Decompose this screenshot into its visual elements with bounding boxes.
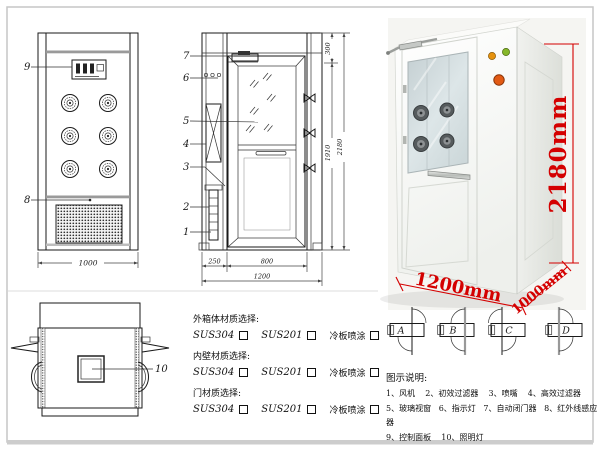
side-nozzle-profiles — [304, 94, 315, 172]
option-sus304: SUS304 — [193, 404, 234, 415]
checkbox-outer-sus304[interactable] — [239, 331, 248, 340]
svg-text:1910: 1910 — [324, 145, 332, 162]
checkbox-door-coldplate[interactable] — [370, 405, 379, 414]
top-view-drawing: 10 — [11, 303, 169, 416]
svg-text:D: D — [561, 326, 570, 337]
air-shower-spec-sheet: 9 8 1000 — [0, 0, 600, 450]
callout-indicator-light: 6 — [183, 73, 190, 84]
option-sus304: SUS304 — [193, 330, 234, 341]
material-title: 门材质选择: — [193, 386, 388, 399]
material-title: 内壁材质选择: — [193, 349, 388, 362]
svg-text:800: 800 — [261, 258, 273, 266]
legend-title: 图示说明: — [386, 370, 598, 384]
indicator-light-green — [502, 48, 509, 55]
return-air-grille — [56, 205, 122, 243]
option-coldplate: 冷板喷涂 — [329, 403, 365, 416]
svg-text:A: A — [397, 326, 405, 337]
svg-text:2180: 2180 — [336, 139, 344, 157]
checkbox-inner-coldplate[interactable] — [370, 368, 379, 377]
side-view-drawing: 7 6 5 4 3 — [182, 33, 350, 286]
callout-nozzle: 3 — [183, 162, 189, 173]
side-dims-vertical: 300 1910 2180 — [320, 33, 350, 250]
option-sus201: SUS201 — [261, 404, 302, 415]
option-sus201: SUS201 — [261, 367, 302, 378]
top-divider-bar — [46, 51, 130, 54]
front-nozzles — [62, 95, 117, 178]
callout-hepa-filter: 4 — [182, 139, 189, 150]
front-view-drawing: 9 8 1000 — [24, 33, 138, 268]
door-swing-options: A B C D — [387, 304, 587, 358]
checkbox-outer-coldplate[interactable] — [370, 331, 379, 340]
legend-row: 5、玻璃视窗 6、指示灯 7、自动闭门器 8、红外线感应器 — [386, 402, 598, 431]
sensor-bar — [46, 196, 130, 199]
callout-fan: 1 — [183, 227, 189, 238]
door-option-c: C — [488, 304, 530, 358]
glass-hatching — [246, 73, 276, 133]
material-section-door: 门材质选择: SUS304 SUS201 冷板喷涂 — [193, 386, 388, 416]
checkbox-inner-sus201[interactable] — [307, 368, 316, 377]
svg-text:1000: 1000 — [78, 259, 97, 268]
svg-text:250: 250 — [207, 258, 220, 266]
option-coldplate: 冷板喷涂 — [329, 366, 365, 379]
svg-text:C: C — [505, 326, 513, 337]
svg-text:1200: 1200 — [254, 273, 271, 281]
material-title: 外箱体材质选择: — [193, 312, 388, 325]
side-dims-bottom: 250 800 1200 — [202, 252, 322, 286]
checkbox-inner-sus304[interactable] — [239, 368, 248, 377]
callout-infrared-sensor: 8 — [24, 195, 30, 206]
option-coldplate: 冷板喷涂 — [329, 329, 365, 342]
svg-text:B: B — [449, 326, 457, 337]
door-option-a: A — [387, 304, 429, 358]
handle-left — [32, 362, 43, 392]
front-dim-width: 1000 — [38, 252, 138, 268]
checkbox-door-sus304[interactable] — [239, 405, 248, 414]
callout-control-panel: 9 — [24, 62, 31, 73]
checkbox-door-sus201[interactable] — [307, 405, 316, 414]
material-section-outer: 外箱体材质选择: SUS304 SUS201 冷板喷涂 — [193, 312, 388, 342]
door — [228, 56, 305, 247]
callout-glass-window: 5 — [183, 116, 189, 127]
legend-row: 1、风机 2、初效过滤器 3、喷嘴 4、高效过滤器 — [386, 387, 598, 402]
hepa-filter-box — [206, 104, 221, 162]
indicator-lights — [204, 73, 220, 76]
svg-text:300: 300 — [324, 42, 332, 54]
material-selection: 外箱体材质选择: SUS304 SUS201 冷板喷涂 内壁材质选择: SUS3… — [193, 312, 388, 423]
dim-height-label: 2180mm — [545, 95, 572, 214]
parts-legend: 图示说明: 1、风机 2、初效过滤器 3、喷嘴 4、高效过滤器 5、玻璃视窗 6… — [386, 370, 598, 445]
callout-door-closer: 7 — [183, 51, 190, 62]
callout-primary-filter: 2 — [182, 202, 189, 213]
indicator-light-orange — [488, 52, 495, 59]
checkbox-outer-sus201[interactable] — [307, 331, 316, 340]
door-handle — [256, 152, 286, 156]
control-panel — [72, 60, 106, 79]
material-section-inner: 内壁材质选择: SUS304 SUS201 冷板喷涂 — [193, 349, 388, 379]
door-option-d: D — [545, 304, 587, 358]
legend-row: 9、控制面板 10、照明灯 — [386, 431, 598, 446]
emergency-button — [494, 75, 504, 85]
handle-right — [138, 362, 149, 392]
option-sus201: SUS201 — [261, 330, 302, 341]
callout-lamp: 10 — [155, 364, 168, 375]
door-option-b: B — [437, 304, 479, 358]
option-sus304: SUS304 — [193, 367, 234, 378]
